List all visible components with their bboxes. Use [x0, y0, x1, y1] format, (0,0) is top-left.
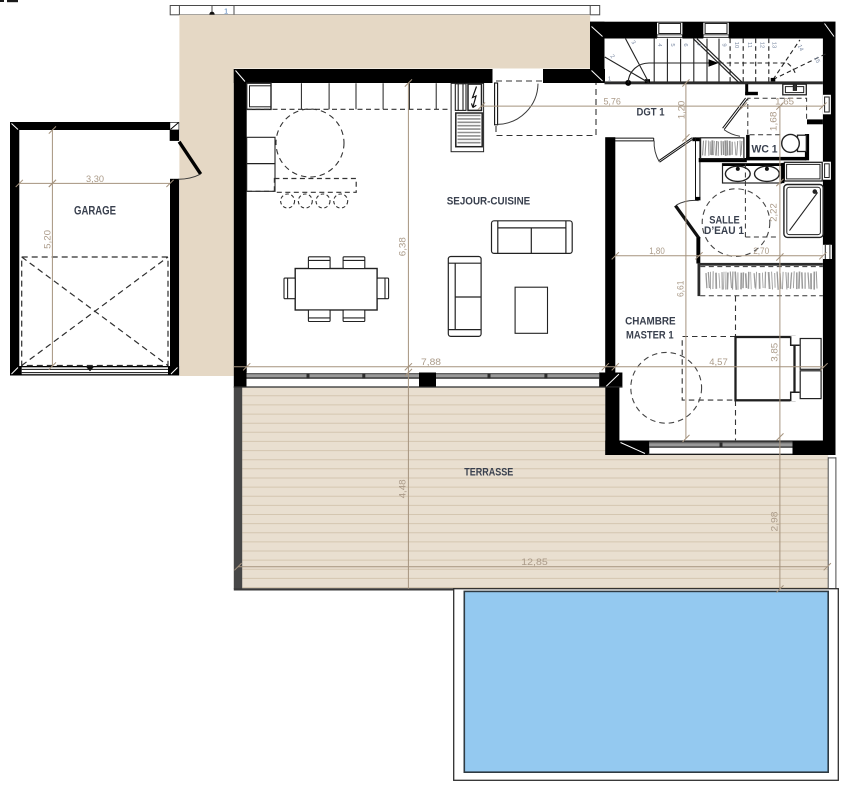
svg-text:3,85: 3,85 — [769, 343, 780, 362]
svg-text:2,22: 2,22 — [768, 203, 779, 222]
svg-text:12: 12 — [759, 42, 765, 48]
svg-text:11: 11 — [746, 42, 752, 48]
svg-text:6,61: 6,61 — [675, 281, 686, 298]
svg-text:7: 7 — [695, 43, 701, 46]
svg-text:2: 2 — [608, 54, 615, 60]
svg-text:4,48: 4,48 — [397, 479, 408, 498]
svg-text:6,38: 6,38 — [397, 237, 408, 256]
svg-text:5: 5 — [669, 43, 675, 46]
svg-text:3,30: 3,30 — [86, 174, 104, 185]
svg-text:1: 1 — [224, 7, 228, 16]
svg-text:TERRASSE: TERRASSE — [464, 466, 513, 478]
svg-text:D’EAU 1: D’EAU 1 — [704, 225, 744, 237]
svg-text:15: 15 — [812, 56, 820, 64]
svg-text:12,85: 12,85 — [521, 557, 548, 568]
svg-text:1,65: 1,65 — [775, 97, 794, 108]
svg-text:CHAMBRE: CHAMBRE — [625, 316, 676, 328]
svg-text:GARAGE: GARAGE — [74, 206, 116, 218]
svg-text:9: 9 — [721, 43, 727, 46]
svg-text:1,20: 1,20 — [676, 101, 687, 119]
svg-text:14: 14 — [796, 44, 804, 53]
svg-text:1: 1 — [608, 77, 611, 83]
svg-text:5,76: 5,76 — [603, 97, 621, 108]
svg-text:7,88: 7,88 — [421, 357, 441, 368]
svg-text:MASTER 1: MASTER 1 — [626, 329, 674, 341]
svg-text:DGT 1: DGT 1 — [637, 106, 665, 118]
svg-text:4,57: 4,57 — [709, 357, 728, 368]
svg-text:6: 6 — [682, 43, 688, 46]
svg-text:4: 4 — [656, 43, 662, 47]
svg-text:WC 1: WC 1 — [752, 143, 778, 155]
svg-text:SEJOUR-CUISINE: SEJOUR-CUISINE — [447, 196, 531, 208]
svg-text:3: 3 — [629, 40, 636, 46]
svg-text:5,20: 5,20 — [42, 230, 53, 249]
svg-text:1,80: 1,80 — [649, 246, 665, 257]
svg-text:1,68: 1,68 — [769, 112, 780, 132]
svg-text:2,70: 2,70 — [753, 246, 769, 257]
svg-text:13: 13 — [771, 42, 777, 48]
svg-text:2,98: 2,98 — [770, 512, 781, 532]
svg-text:10: 10 — [733, 42, 739, 48]
